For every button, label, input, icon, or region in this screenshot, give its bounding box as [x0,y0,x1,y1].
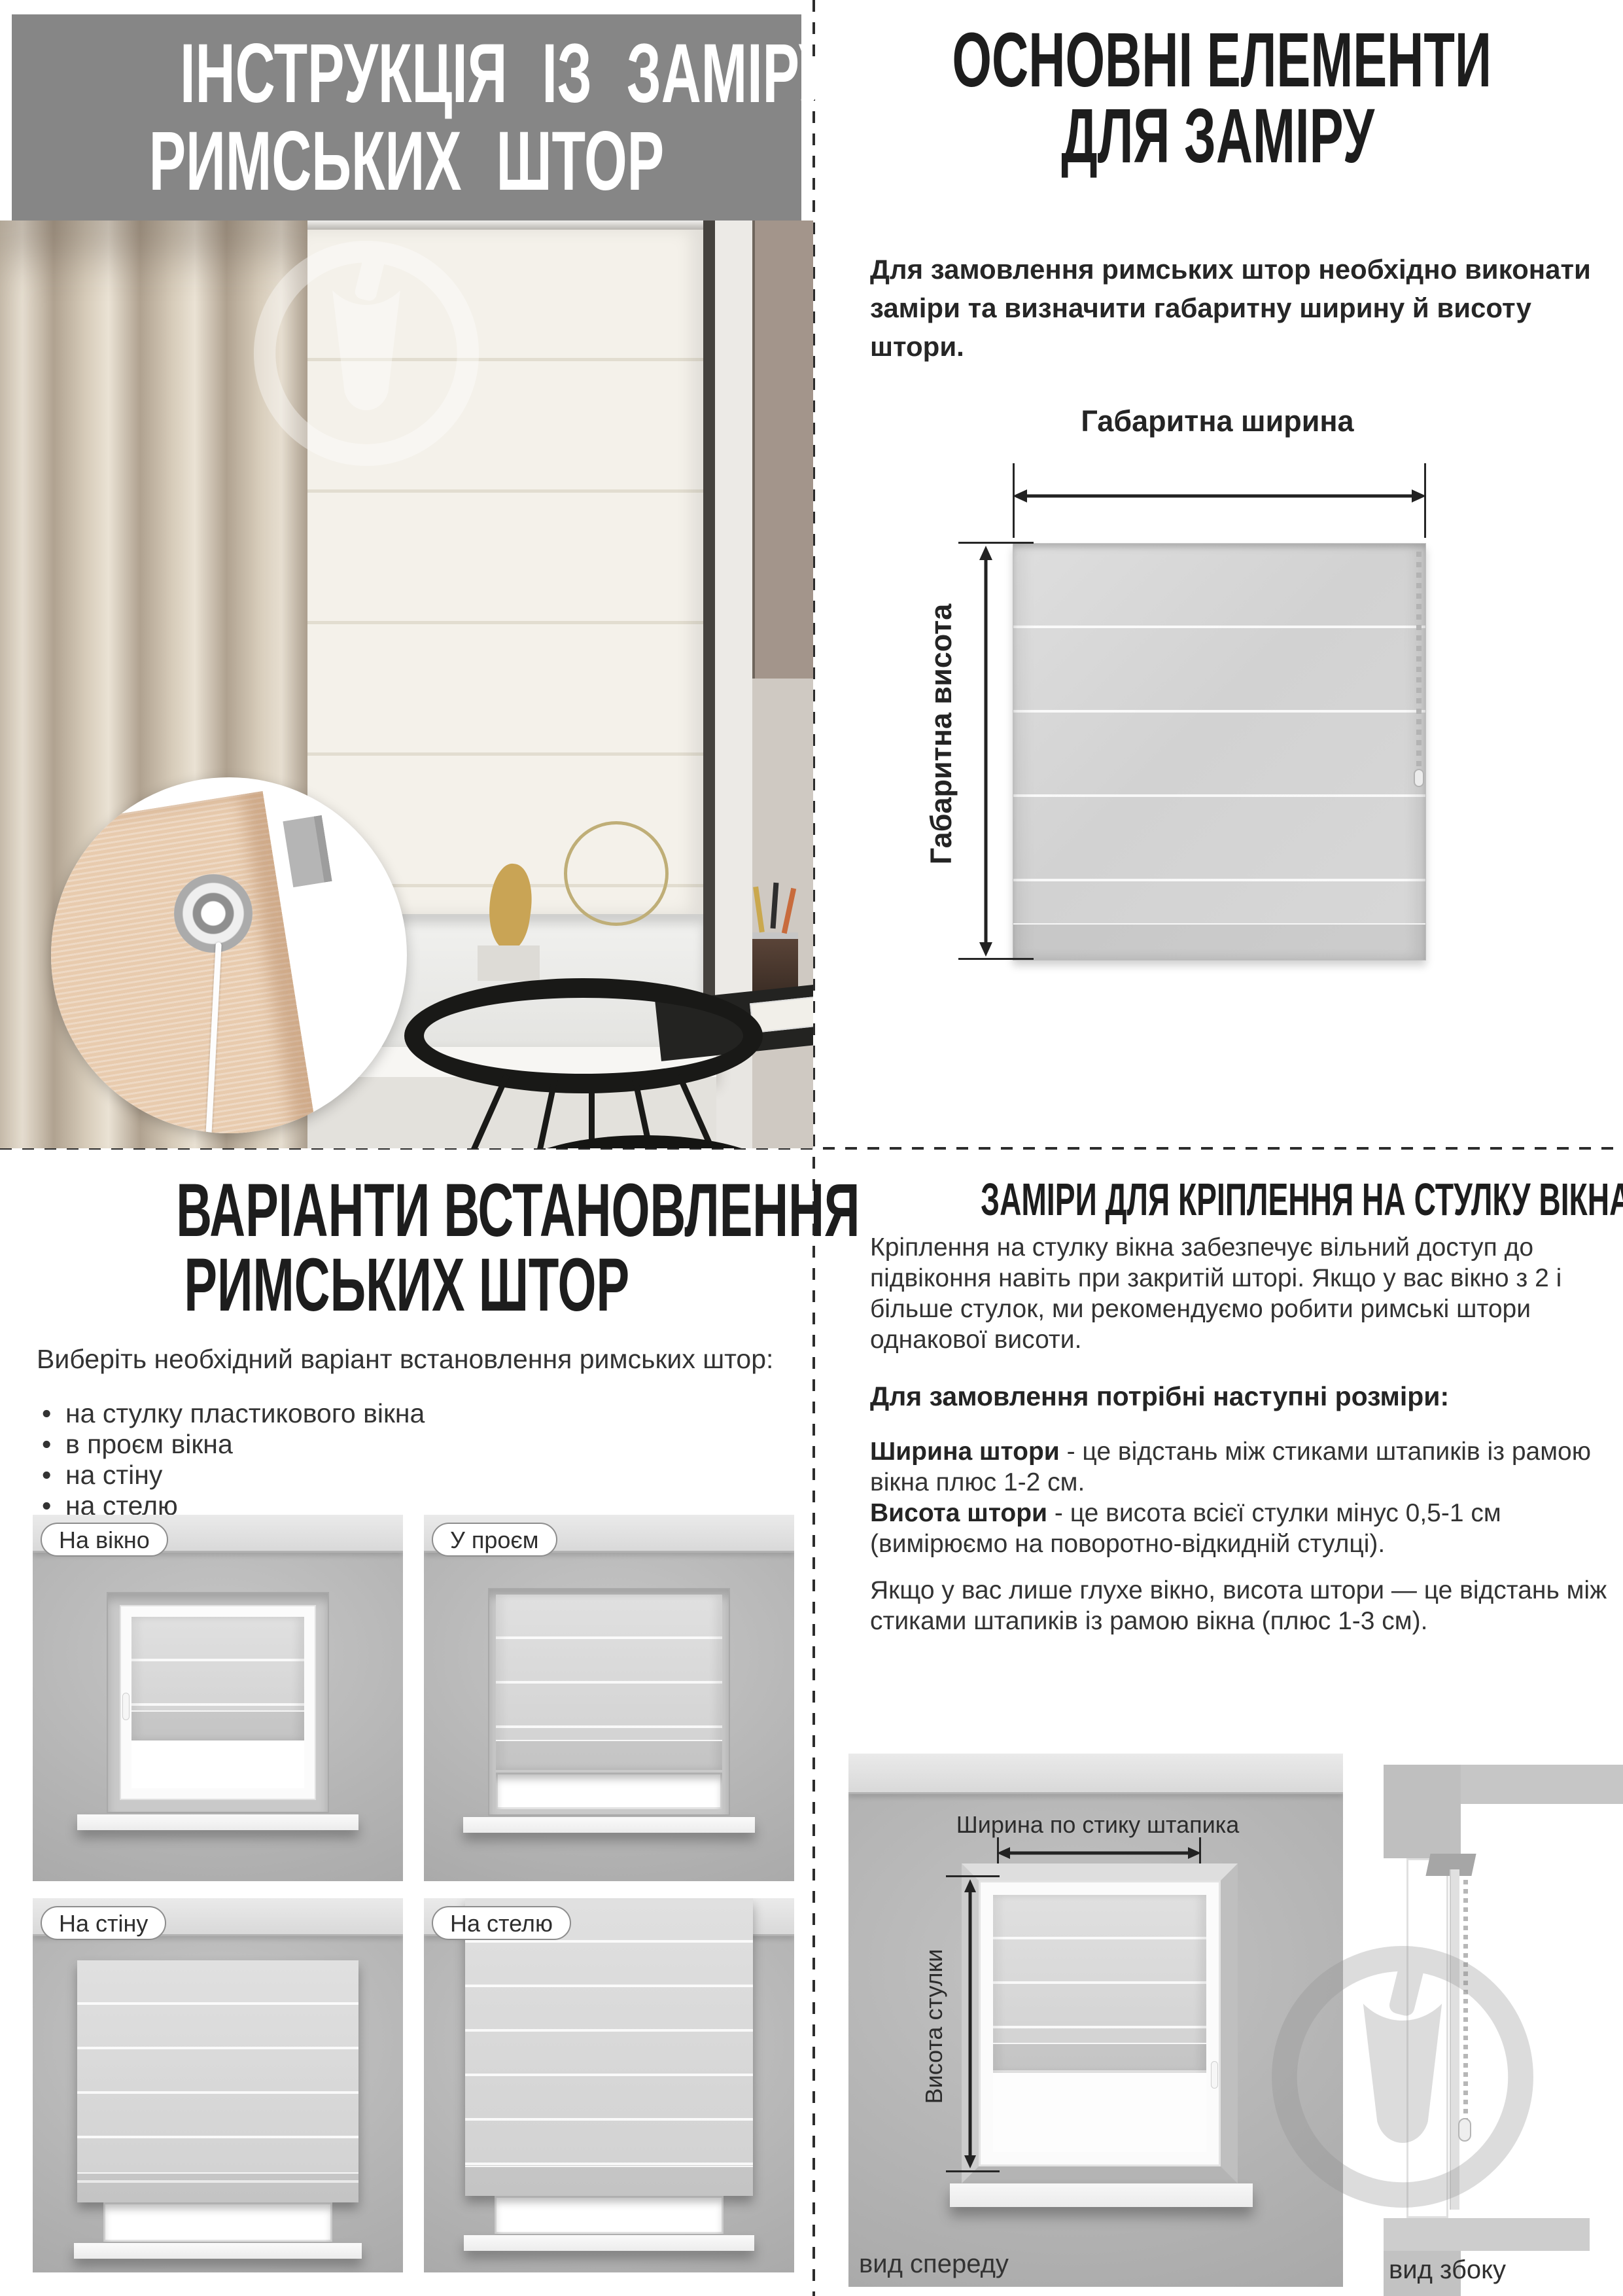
list-item: на стулку пластикового вікна [41,1398,760,1429]
variant-label: На стіну [41,1906,166,1940]
list-item: в проєм вікна [41,1429,760,1460]
variant-label: У проєм [432,1523,557,1557]
variant-in-opening: У проєм [424,1515,794,1881]
window-opening [488,1588,730,1816]
window-frame-edge [703,221,715,1047]
chain-connector [1458,2118,1471,2142]
roman-blind-diagram [1013,543,1426,961]
width-arrow-icon [1013,484,1426,508]
section-install-variants: ВАРІАНТИ ВСТАНОВЛЕННЯ РИМСЬКИХ ШТОР Вибе… [0,1148,813,2296]
chair-backrest [404,978,763,1093]
variant-on-ceiling: На стелю [424,1898,794,2272]
blind-detail-inset [51,777,407,1133]
window-bottom [495,2196,724,2234]
instruction-sheet: ІНСТРУКЦІЯ ІЗ ЗАМІРУ РИМСЬКИХ ШТОР [0,0,1623,2296]
sculpture-base [478,945,540,981]
sill-section [1384,2218,1590,2251]
section-cover: ІНСТРУКЦІЯ ІЗ ЗАМІРУ РИМСЬКИХ ШТОР [0,0,813,1148]
blind-fabric-closeup [51,791,320,1133]
pencil-cup [752,932,798,995]
round-mirror [564,821,669,926]
window-bottom [496,1773,722,1809]
wall-section-top [1384,1765,1461,1858]
window-jamb [715,221,752,1047]
chain-connector [1414,769,1424,787]
mounting-bracket [283,815,332,887]
dimension-tick [958,958,1034,960]
roman-blind-photo [307,230,703,914]
main-elements-title: ОСНОВНІ ЕЛЕМЕНТИ ДЛЯ ЗАМІРУ [813,22,1623,174]
dimension-tick [958,542,1034,544]
roman-blind [496,1595,722,1770]
overall-height-label: Габаритна висота [924,538,954,930]
variants-intro: Виберіть необхідний варіант встановлення… [37,1342,789,1376]
blind-fabric-side [1450,1869,1459,2210]
window-profile [1406,1858,1448,2218]
windowsill [463,1817,755,1833]
window [107,1592,329,1813]
interior-photo [0,221,813,1148]
side-view-diagram: вид збоку [813,1148,1623,2296]
variant-on-wall: На стіну [33,1898,403,2272]
variants-list: на стулку пластикового вікна в проєм вік… [41,1398,760,1521]
grommet-icon [174,874,253,953]
side-view-caption: вид збоку [1389,2255,1506,2285]
cover-title-line2: РИМСЬКИХ ШТОР [12,120,801,203]
variant-on-window: На вікно [33,1515,403,1881]
windowsill [74,2243,362,2259]
roman-blind [465,1898,753,2196]
main-elements-intro: Для замовлення римських штор необхідно в… [870,250,1606,366]
windowsill [77,1814,358,1830]
section-sash-measurement: ЗАМІРИ ДЛЯ КРІПЛЕННЯ НА СТУЛКУ ВІКНА Крі… [813,1148,1623,2296]
window-handle [122,1693,130,1720]
bead-chain [1416,552,1422,768]
wall-right [752,221,813,679]
cover-title-line1: ІНСТРУКЦІЯ ІЗ ЗАМІРУ [12,32,801,116]
list-item: на стіну [41,1460,760,1491]
variant-label: На вікно [41,1523,168,1557]
variant-label: На стелю [432,1906,571,1940]
overall-width-label: Габаритна ширина [1021,404,1414,438]
variants-title: ВАРІАНТИ ВСТАНОВЛЕННЯ РИМСЬКИХ ШТОР [0,1173,813,1322]
window-bottom [103,2202,332,2242]
bead-chain [1463,1880,1468,2142]
section-main-elements: ОСНОВНІ ЕЛЕМЕНТИ ДЛЯ ЗАМІРУ Для замовлен… [813,0,1623,1148]
cover-header: ІНСТРУКЦІЯ ІЗ ЗАМІРУ РИМСЬКИХ ШТОР [12,14,801,221]
roman-blind [77,1960,358,2202]
height-arrow-icon [973,546,999,957]
roman-blind [131,1617,304,1740]
windowsill [464,2235,754,2251]
